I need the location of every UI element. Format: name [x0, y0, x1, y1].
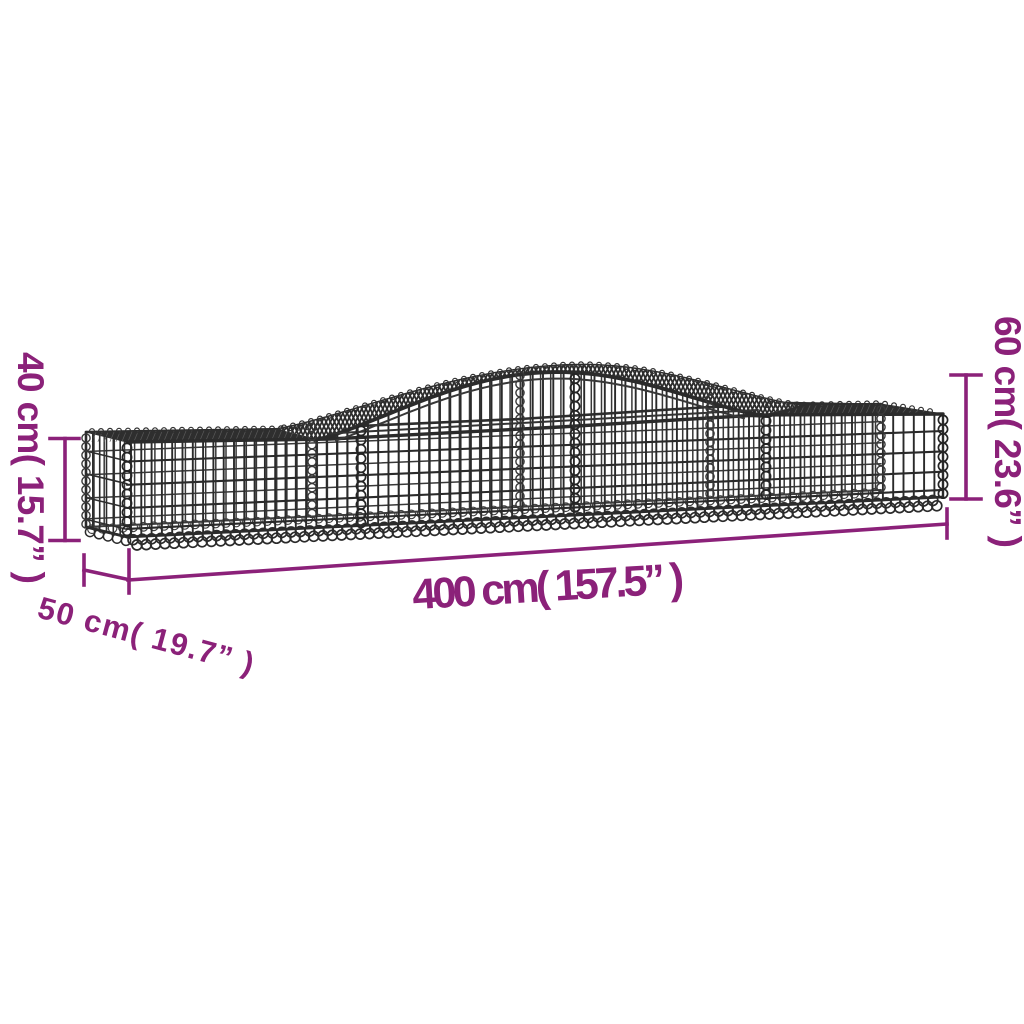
- svg-text:400 cm( 157.5” ): 400 cm( 157.5” ): [411, 555, 685, 620]
- svg-text:50 cm( 19.7” ): 50 cm( 19.7” ): [34, 590, 257, 681]
- svg-text:40 cm( 15.7” ): 40 cm( 15.7” ): [10, 352, 51, 584]
- svg-text:60 cm( 23.6” ): 60 cm( 23.6” ): [987, 316, 1024, 548]
